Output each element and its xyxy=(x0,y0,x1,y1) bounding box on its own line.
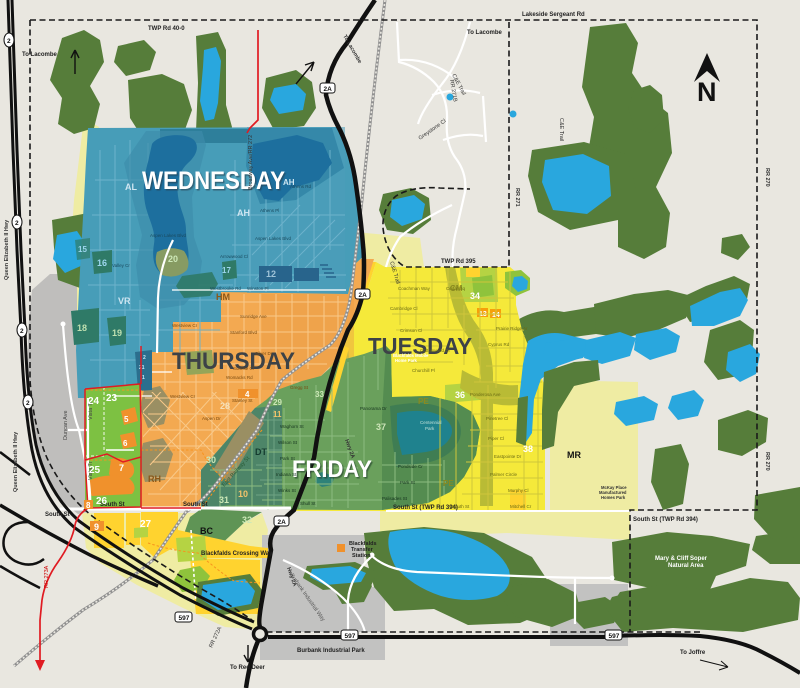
svg-text:RR 273A: RR 273A xyxy=(44,565,50,588)
svg-text:To Joffre: To Joffre xyxy=(680,650,706,656)
svg-text:6: 6 xyxy=(123,439,128,448)
svg-text:To Lacombe: To Lacombe xyxy=(22,52,58,58)
svg-text:DT: DT xyxy=(255,447,267,457)
svg-text:Westview Cr: Westview Cr xyxy=(170,394,196,399)
svg-text:31: 31 xyxy=(219,495,229,505)
svg-text:2A: 2A xyxy=(359,292,368,299)
svg-text:Womacks Rd: Womacks Rd xyxy=(226,375,253,380)
svg-text:PE: PE xyxy=(443,479,454,488)
svg-text:Winston Pl: Winston Pl xyxy=(247,286,269,291)
svg-text:21: 21 xyxy=(139,365,145,371)
svg-text:2A: 2A xyxy=(324,86,333,93)
svg-text:To Lacombe: To Lacombe xyxy=(467,30,503,36)
svg-text:2: 2 xyxy=(7,38,11,45)
svg-text:27: 27 xyxy=(140,519,152,530)
svg-text:South St (TWP Rd 394): South St (TWP Rd 394) xyxy=(633,517,698,523)
svg-text:37: 37 xyxy=(376,422,386,432)
svg-text:16: 16 xyxy=(97,258,107,268)
svg-text:Mitchell Cr: Mitchell Cr xyxy=(510,504,532,509)
svg-text:Cedar Sq: Cedar Sq xyxy=(446,286,466,291)
svg-text:South St: South St xyxy=(452,504,470,509)
svg-text:12: 12 xyxy=(266,269,276,279)
svg-text:Waghorn St: Waghorn St xyxy=(280,424,304,429)
svg-text:1: 1 xyxy=(142,375,145,381)
svg-text:19: 19 xyxy=(112,328,122,338)
svg-text:25: 25 xyxy=(89,465,101,476)
svg-text:23: 23 xyxy=(106,393,118,404)
svg-text:26: 26 xyxy=(96,496,108,507)
svg-text:Coachman Way: Coachman Way xyxy=(398,286,431,291)
svg-text:34: 34 xyxy=(470,291,480,301)
svg-text:Palisades St: Palisades St xyxy=(382,496,408,501)
svg-text:Athens Rd: Athens Rd xyxy=(290,184,312,189)
svg-text:Station: Station xyxy=(352,553,371,559)
svg-text:Westbrooke Rd: Westbrooke Rd xyxy=(210,286,241,291)
svg-text:Park St: Park St xyxy=(400,480,416,485)
svg-text:7: 7 xyxy=(119,463,124,473)
svg-text:Stanford Blvd: Stanford Blvd xyxy=(230,330,258,335)
svg-text:South St: South St xyxy=(183,502,208,508)
svg-text:FRIDAY: FRIDAY xyxy=(292,456,372,483)
svg-text:Mary & Cliff Soper: Mary & Cliff Soper xyxy=(655,556,708,562)
svg-text:38: 38 xyxy=(523,444,533,454)
svg-text:15: 15 xyxy=(78,245,87,254)
svg-text:RH: RH xyxy=(148,474,161,484)
svg-text:Aspen Lakes Blvd: Aspen Lakes Blvd xyxy=(150,233,187,238)
svg-text:Piper Cl: Piper Cl xyxy=(488,436,504,441)
svg-text:Pinetree Cl: Pinetree Cl xyxy=(486,416,508,421)
svg-text:MR: MR xyxy=(567,450,581,460)
svg-text:32: 32 xyxy=(242,515,252,525)
svg-text:28: 28 xyxy=(220,401,230,411)
svg-text:Silver Dr: Silver Dr xyxy=(255,351,273,356)
svg-text:Crimson Cl: Crimson Cl xyxy=(400,328,422,333)
svg-text:Cottonwood Dr: Cottonwood Dr xyxy=(420,348,451,353)
svg-text:N: N xyxy=(697,77,717,107)
svg-text:Valley Cr: Valley Cr xyxy=(112,263,130,268)
svg-text:Park: Park xyxy=(425,426,435,431)
svg-text:Lakeside Sergeant Rd: Lakeside Sergeant Rd xyxy=(522,12,585,18)
svg-text:Pondside Cr: Pondside Cr xyxy=(398,464,423,469)
svg-text:Homes Park: Homes Park xyxy=(601,495,626,500)
svg-text:Cambridge Cl: Cambridge Cl xyxy=(390,306,418,311)
svg-text:597: 597 xyxy=(609,633,620,640)
svg-text:Arrowwood Cl: Arrowwood Cl xyxy=(220,254,248,259)
svg-text:33: 33 xyxy=(315,390,324,399)
svg-text:AH: AH xyxy=(237,208,250,218)
svg-text:5: 5 xyxy=(124,415,129,424)
svg-text:Aspen Lakes Blvd: Aspen Lakes Blvd xyxy=(255,236,292,241)
svg-text:Duncan Ave: Duncan Ave xyxy=(63,410,69,440)
svg-text:Natural Area: Natural Area xyxy=(668,563,704,569)
svg-text:AL: AL xyxy=(125,182,137,192)
svg-text:C&E Trail: C&E Trail xyxy=(558,118,564,141)
svg-text:VR: VR xyxy=(118,296,131,306)
svg-text:9: 9 xyxy=(94,522,99,532)
svg-text:Winks St: Winks St xyxy=(278,488,297,493)
svg-text:Wilson St: Wilson St xyxy=(278,440,298,445)
svg-text:30: 30 xyxy=(206,455,216,465)
svg-text:RR 271: RR 271 xyxy=(514,188,520,207)
svg-text:Gregg St: Gregg St xyxy=(290,385,309,390)
svg-text:29: 29 xyxy=(273,398,282,407)
svg-text:Home Park: Home Park xyxy=(395,358,418,363)
svg-text:South St: South St xyxy=(45,512,70,518)
svg-text:Queen Elizabeth II Hwy: Queen Elizabeth II Hwy xyxy=(4,219,10,280)
svg-text:2: 2 xyxy=(143,355,146,361)
svg-text:2A: 2A xyxy=(278,519,287,526)
svg-text:18: 18 xyxy=(77,323,87,333)
svg-text:17: 17 xyxy=(222,266,231,275)
svg-text:Aspen Dr: Aspen Dr xyxy=(202,416,221,421)
svg-text:Cyprus Rd: Cyprus Rd xyxy=(488,342,510,347)
svg-text:2: 2 xyxy=(26,400,30,407)
svg-text:Palmer Circle: Palmer Circle xyxy=(490,472,518,477)
svg-text:8: 8 xyxy=(86,501,91,510)
svg-text:20: 20 xyxy=(168,254,178,264)
svg-text:South St (TWP Rd 394): South St (TWP Rd 394) xyxy=(393,505,458,511)
svg-text:2: 2 xyxy=(15,220,19,227)
svg-text:Prairie Ridge Ar: Prairie Ridge Ar xyxy=(496,326,528,331)
svg-text:597: 597 xyxy=(179,615,190,622)
svg-text:HM: HM xyxy=(216,292,230,302)
svg-text:Churchill Pl: Churchill Pl xyxy=(412,368,435,373)
svg-text:WEDNESDAY: WEDNESDAY xyxy=(142,167,285,195)
svg-text:TWP Rd 395: TWP Rd 395 xyxy=(441,259,476,265)
svg-text:Eastpointe Dr: Eastpointe Dr xyxy=(494,454,522,459)
svg-text:Broadway Ave/RR 272: Broadway Ave/RR 272 xyxy=(248,135,254,190)
svg-text:BC: BC xyxy=(200,526,213,536)
svg-text:Westview Cr: Westview Cr xyxy=(172,323,198,328)
svg-text:Burbank Industrial Park: Burbank Industrial Park xyxy=(297,648,365,654)
svg-text:Sunrise Cl: Sunrise Cl xyxy=(233,366,254,371)
svg-text:To Red Deer: To Red Deer xyxy=(230,665,266,671)
svg-text:TWP Rd 40-0: TWP Rd 40-0 xyxy=(148,26,185,32)
svg-text:Shull St: Shull St xyxy=(300,501,316,506)
svg-text:RR 270: RR 270 xyxy=(764,452,770,471)
svg-text:PE: PE xyxy=(418,397,429,406)
svg-text:4: 4 xyxy=(245,390,250,399)
svg-text:24: 24 xyxy=(88,396,100,407)
svg-text:Blackfalds Crossing Way: Blackfalds Crossing Way xyxy=(201,551,273,557)
svg-text:Murphy Cl: Murphy Cl xyxy=(508,488,529,493)
svg-text:11: 11 xyxy=(273,410,282,419)
svg-text:597: 597 xyxy=(345,633,356,640)
svg-text:Centennial: Centennial xyxy=(420,420,442,425)
svg-text:Ponderosa Ave: Ponderosa Ave xyxy=(470,392,501,397)
svg-text:Athens Pl: Athens Pl xyxy=(260,208,279,213)
svg-text:Stanley St: Stanley St xyxy=(232,398,253,403)
svg-text:Park St: Park St xyxy=(280,456,296,461)
svg-text:2: 2 xyxy=(20,328,24,335)
svg-text:Indiana St: Indiana St xyxy=(276,472,297,477)
svg-text:RR 270: RR 270 xyxy=(764,168,770,187)
svg-text:36: 36 xyxy=(455,390,465,400)
svg-text:Sunridge Ave: Sunridge Ave xyxy=(240,314,267,319)
svg-text:Panorama Dr: Panorama Dr xyxy=(360,406,387,411)
svg-text:Queen Elizabeth II Hwy: Queen Elizabeth II Hwy xyxy=(13,431,19,492)
svg-text:10: 10 xyxy=(238,489,248,499)
